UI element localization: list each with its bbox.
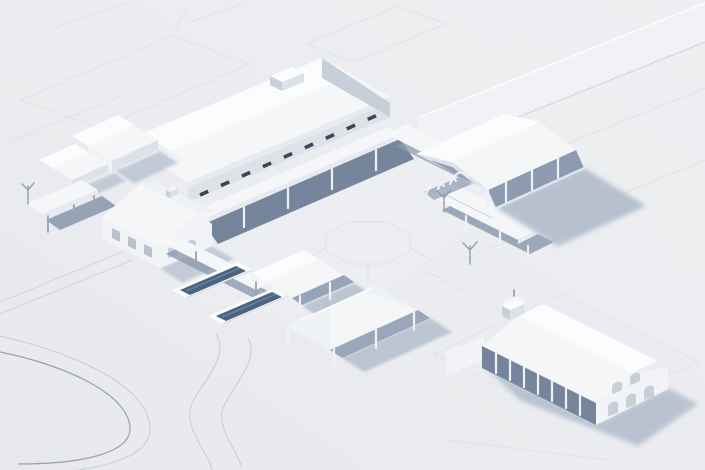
architectural-render xyxy=(0,0,705,470)
site-model-canvas xyxy=(0,0,705,470)
